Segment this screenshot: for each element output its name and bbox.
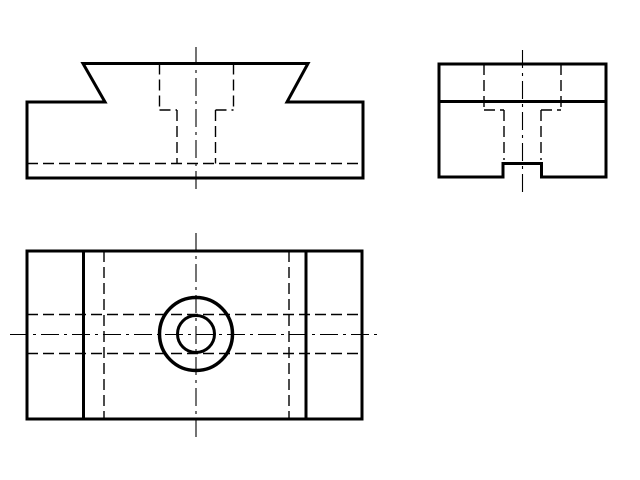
drawing-sheet — [0, 0, 640, 480]
side-view — [439, 50, 606, 197]
front-view — [27, 47, 363, 191]
technical-drawing — [0, 0, 640, 480]
top-view — [10, 233, 382, 439]
front-outline — [27, 64, 363, 179]
